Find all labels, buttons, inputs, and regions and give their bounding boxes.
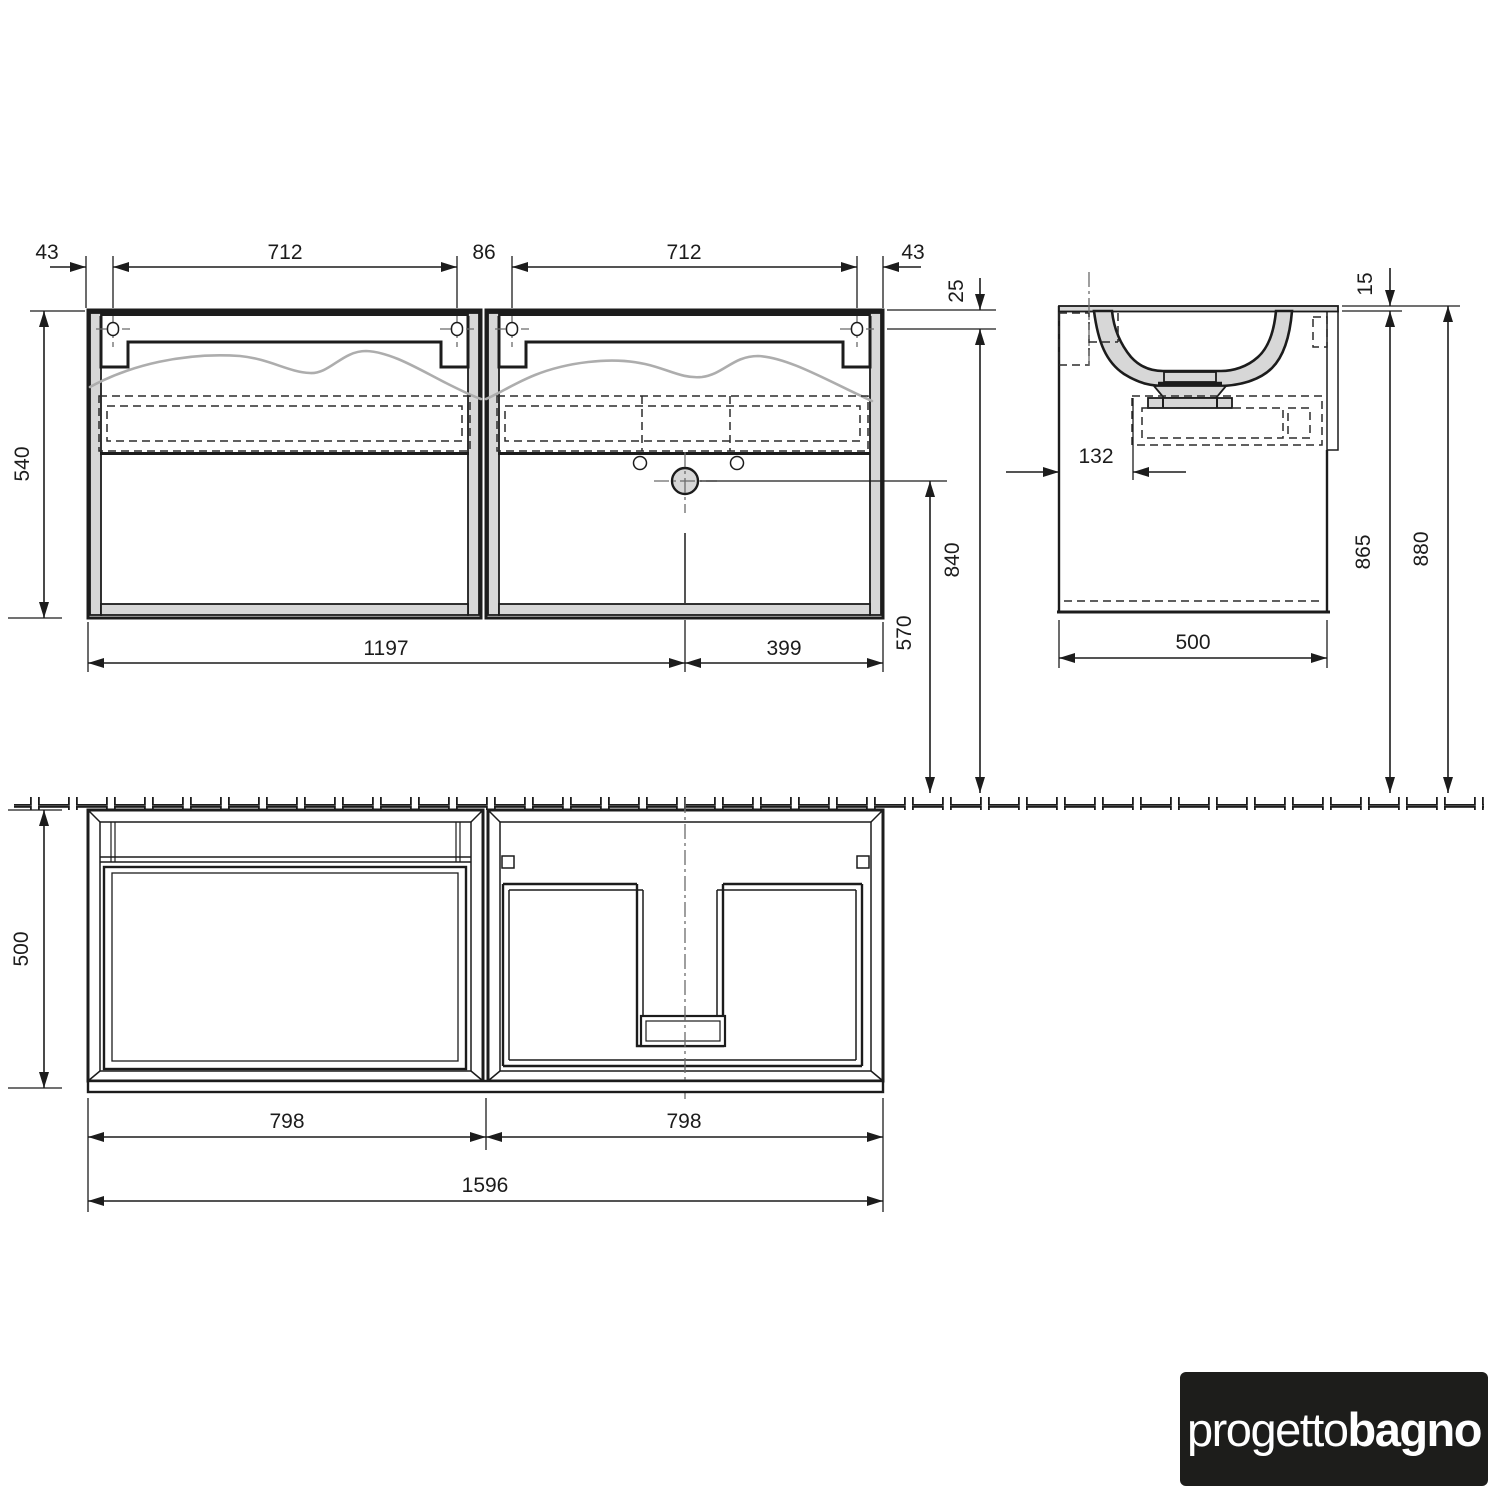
side-section-view	[1057, 272, 1338, 613]
wall-hatch-strip	[14, 797, 1484, 810]
dim-front-height: 540	[8, 311, 85, 618]
dim-label-712-left: 712	[267, 241, 302, 264]
brand-name-light: progetto	[1187, 1406, 1347, 1453]
dim-label-798-left: 798	[269, 1110, 304, 1133]
dim-label-132: 132	[1078, 445, 1113, 468]
brand-name-bold: bagno	[1347, 1406, 1480, 1453]
dim-label-25: 25	[945, 279, 968, 302]
cabinet-outline	[88, 310, 481, 618]
dim-label-880: 880	[1410, 531, 1433, 566]
faucet-hole-small	[731, 457, 744, 470]
plan-module-right	[488, 798, 883, 1102]
dim-row-front-top: 43 712 86 712 43	[35, 241, 924, 308]
bottom-panel	[499, 604, 870, 615]
dim-label-1197: 1197	[363, 637, 408, 660]
dim-label-43-left: 43	[35, 241, 58, 264]
dim-label-1596: 1596	[462, 1174, 509, 1197]
cabinet-left-front	[88, 310, 481, 618]
hidden-front-block-outline	[1313, 317, 1327, 347]
dim-label-840: 840	[941, 542, 964, 577]
dim-group-side: 132 15 865 880 500	[1006, 268, 1460, 793]
corner-block	[502, 856, 514, 868]
technical-drawing-sheet: 43 712 86 712 43 540 1197 399 25 840 570	[0, 0, 1500, 1500]
vanity-technical-drawing: 43 712 86 712 43 540 1197 399 25 840 570	[0, 0, 1500, 1500]
cabinet-right-front	[486, 310, 883, 618]
drawer-front-panel-section	[1327, 311, 1338, 450]
faucet-hole-small	[634, 457, 647, 470]
plan-module-left	[88, 810, 483, 1081]
dim-label-43-right: 43	[901, 241, 924, 264]
dim-label-540: 540	[11, 446, 34, 481]
dim-label-570: 570	[893, 615, 916, 650]
brand-logo: progettobagno	[1180, 1372, 1488, 1486]
plan-view	[88, 798, 883, 1102]
dim-label-712-right: 712	[666, 241, 701, 264]
side-panel-right	[870, 313, 881, 615]
corner-block	[857, 856, 869, 868]
plan-outline	[88, 810, 483, 1081]
dim-row-front-bottom: 1197 399	[88, 620, 883, 672]
dim-label-399: 399	[766, 637, 801, 660]
side-panel-right	[468, 313, 479, 615]
dim-label-500-side: 500	[1175, 631, 1210, 654]
dim-label-798-right: 798	[666, 1110, 701, 1133]
plan-front-band	[88, 1081, 883, 1092]
side-panel-left	[90, 313, 101, 615]
bottom-panel	[101, 604, 468, 615]
dim-label-500-plan: 500	[10, 931, 33, 966]
front-elevation-view	[88, 310, 883, 618]
dim-label-86: 86	[472, 241, 495, 264]
side-panel-left	[488, 313, 499, 615]
dim-label-15: 15	[1354, 272, 1377, 295]
dim-label-865: 865	[1352, 534, 1375, 569]
